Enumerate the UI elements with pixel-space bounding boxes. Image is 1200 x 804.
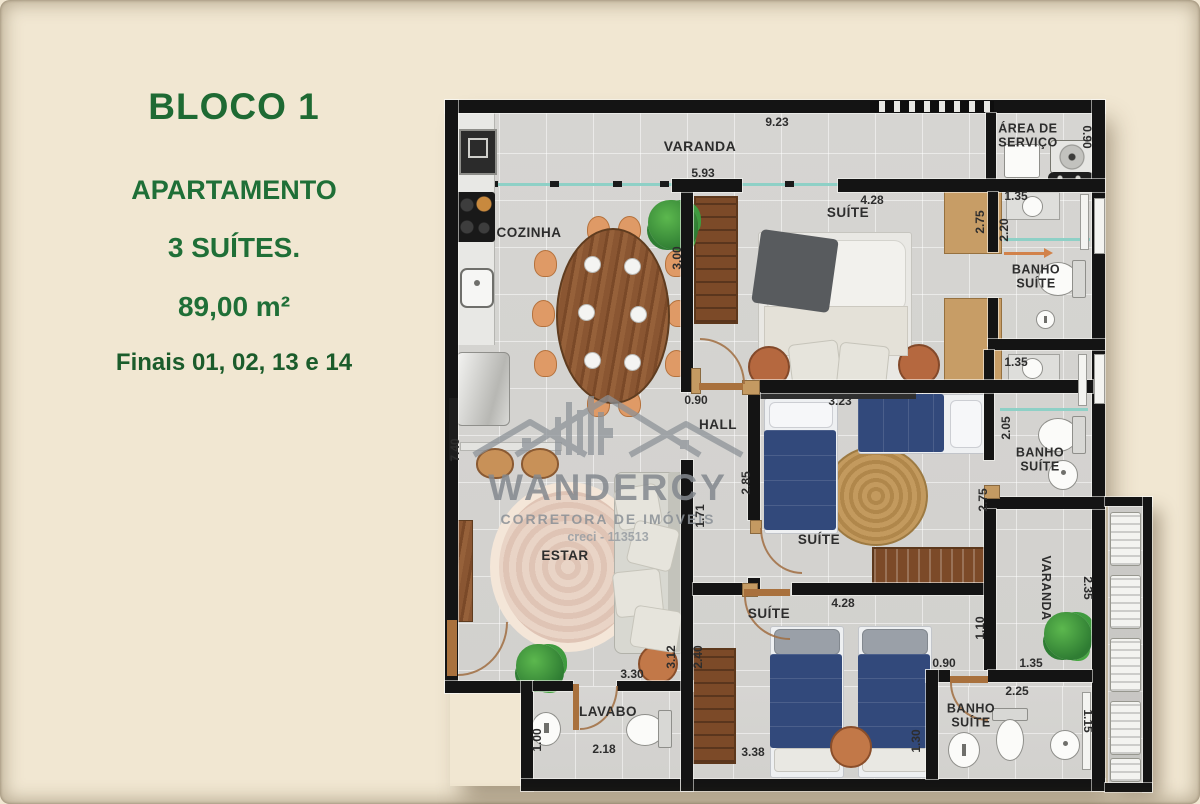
room-label-banho3: BANHO SUÍTE bbox=[947, 702, 995, 731]
wall-hall bbox=[681, 460, 693, 791]
bar-stool bbox=[476, 448, 514, 479]
info-panel: BLOCO 1 APARTAMENTO 3 SUÍTES. 89,00 m² F… bbox=[48, 86, 420, 377]
suite2-duvet bbox=[764, 430, 836, 530]
dim-label: 0.90 bbox=[684, 393, 707, 407]
sink-drain bbox=[474, 280, 480, 286]
banho3-sink-icon bbox=[948, 732, 980, 768]
wall-varanda-partition bbox=[984, 509, 996, 670]
suite2-pillow2 bbox=[950, 400, 982, 448]
place-setting bbox=[584, 256, 601, 273]
wall-banho3-top-b bbox=[988, 670, 1092, 682]
suite3-stool bbox=[830, 726, 872, 768]
dim-label: 2.40 bbox=[691, 645, 705, 668]
room-label-suite1: SUÍTE bbox=[827, 205, 869, 221]
kitchen-sink-icon bbox=[460, 268, 494, 308]
dim-label: 3.30 bbox=[620, 667, 643, 681]
wall-suite2-bottom-a bbox=[693, 583, 742, 595]
wall-under-varanda bbox=[838, 179, 1105, 192]
glass-track-stop bbox=[785, 181, 794, 187]
room-label-lavabo: LAVABO bbox=[579, 704, 637, 720]
dim-label: 1.35 bbox=[1004, 189, 1027, 203]
dim-label: 5.93 bbox=[691, 166, 714, 180]
block-title: BLOCO 1 bbox=[48, 86, 420, 128]
room-label-banho1: BANHO SUÍTE bbox=[1012, 263, 1060, 292]
dim-label: 3.38 bbox=[741, 745, 764, 759]
dim-label: 0.90 bbox=[1080, 125, 1094, 148]
wall-banho2-left bbox=[984, 350, 994, 460]
louver-panel bbox=[1110, 638, 1141, 692]
dim-label: 4.28 bbox=[860, 193, 883, 207]
room-label-cozinha: COZINHA bbox=[497, 225, 562, 241]
fridge-icon bbox=[456, 352, 510, 426]
room-label-suite2: SUÍTE bbox=[798, 532, 840, 548]
glass-track-stop bbox=[660, 181, 669, 187]
dim-label: 1.15 bbox=[1081, 709, 1095, 732]
suite2-closet bbox=[872, 547, 988, 585]
entry-door-leaf bbox=[447, 620, 457, 676]
place-setting bbox=[624, 258, 641, 275]
room-label-servico: ÁREA DE SERVIÇO bbox=[998, 122, 1058, 151]
dim-label: 1.10 bbox=[973, 616, 987, 639]
dining-chair bbox=[532, 300, 555, 327]
dim-label: 2.75 bbox=[973, 210, 987, 233]
drain-mark bbox=[1063, 741, 1068, 746]
dim-label: 1.30 bbox=[909, 729, 923, 752]
suite2-pillow bbox=[769, 402, 833, 428]
wall-lavabo-top-a bbox=[533, 681, 573, 691]
dim-label: 2.18 bbox=[592, 742, 615, 756]
banho2-toilet-tank bbox=[1072, 416, 1086, 454]
drain-mark bbox=[1044, 316, 1047, 323]
suite3-bed-duvet bbox=[770, 654, 842, 748]
dim-label: 3.00 bbox=[670, 246, 684, 269]
glass-track-stop bbox=[550, 181, 559, 187]
dim-label: 3.12 bbox=[664, 645, 678, 668]
lavabo-toilet-tank bbox=[658, 710, 672, 748]
dim-label: 1.00 bbox=[530, 728, 544, 751]
suite3-bed2-pillow bbox=[862, 629, 928, 655]
suite2-jute-rug bbox=[824, 446, 928, 546]
glass-track-stop bbox=[613, 181, 622, 187]
unit-endings: Finais 01, 02, 13 e 14 bbox=[48, 349, 420, 377]
place-setting bbox=[630, 306, 647, 323]
dim-label: 9.23 bbox=[765, 115, 788, 129]
stove-icon bbox=[455, 192, 495, 242]
dim-label: 1.35 bbox=[1004, 355, 1027, 369]
oven-icon bbox=[459, 129, 497, 175]
place-setting bbox=[578, 304, 595, 321]
banho1-shower-glass bbox=[1080, 194, 1089, 250]
dim-label: 1.71 bbox=[693, 504, 707, 527]
dim-label: 3.23 bbox=[828, 394, 851, 408]
wall-suite1-corner bbox=[672, 179, 742, 192]
wall-banho2-bottom bbox=[984, 497, 1105, 509]
dining-chair bbox=[534, 250, 557, 277]
wall-suite2-left-a bbox=[748, 393, 760, 520]
room-label-suite3: SUÍTE bbox=[748, 606, 790, 622]
wall-suite2-bottom-b bbox=[792, 583, 988, 595]
dim-label: 2.25 bbox=[1005, 684, 1028, 698]
suite2-duvet2 bbox=[858, 394, 944, 452]
dim-label: 2.75 bbox=[976, 488, 990, 511]
dining-chair bbox=[534, 350, 557, 377]
wall-left bbox=[445, 100, 458, 693]
banho1-door-arrow bbox=[1004, 252, 1044, 255]
room-label-varanda2: VARANDA bbox=[1039, 555, 1053, 620]
dim-label: 0.90 bbox=[932, 656, 955, 670]
wall-bottom bbox=[681, 779, 1105, 791]
banho1-toilet-tank bbox=[1072, 260, 1086, 298]
place-setting bbox=[624, 354, 641, 371]
dim-label: 2.35 bbox=[1081, 576, 1095, 599]
louver-panel bbox=[1110, 701, 1141, 755]
banho3-toilet-bowl bbox=[996, 719, 1024, 761]
tv-sideboard bbox=[456, 520, 473, 622]
dim-label: 7.40 bbox=[448, 438, 462, 461]
dining-table bbox=[556, 228, 670, 404]
wall-annex-right bbox=[1143, 497, 1152, 792]
wall-suite1-bottom bbox=[748, 380, 1093, 393]
room-label-banho2: BANHO SUÍTE bbox=[1016, 446, 1064, 475]
service-vent-window bbox=[870, 101, 994, 112]
dim-label: 2.05 bbox=[999, 416, 1013, 439]
faucet-mark bbox=[962, 744, 966, 756]
wall-lavabo-bottom bbox=[521, 779, 693, 791]
wall-banho-divider bbox=[988, 339, 1105, 350]
suite-count: 3 SUÍTES. bbox=[48, 232, 420, 264]
room-label-estar: ESTAR bbox=[541, 548, 588, 564]
unit-type: APARTAMENTO bbox=[48, 175, 420, 206]
dim-label: 2.20 bbox=[997, 218, 1011, 241]
wall-suite1-left bbox=[681, 179, 693, 392]
suite3-door-leaf bbox=[744, 589, 790, 596]
suite1-door-leaf bbox=[699, 383, 743, 390]
suite1-throw-blanket bbox=[751, 229, 839, 313]
banho3-shower-drain bbox=[1050, 730, 1080, 760]
wall-banho3-left bbox=[926, 670, 938, 779]
banho1-drain bbox=[1036, 310, 1055, 329]
banho2-glass-line bbox=[1000, 408, 1088, 411]
oven-door bbox=[468, 138, 488, 158]
banho3-door-leaf bbox=[950, 676, 988, 683]
wall-annex-bottom bbox=[1105, 783, 1152, 792]
louver-panel bbox=[1110, 575, 1141, 629]
bar-stool bbox=[521, 448, 559, 479]
louver-panel bbox=[1110, 758, 1141, 782]
banho1-glass-line bbox=[1004, 238, 1090, 241]
room-label-varanda: VARANDA bbox=[664, 138, 736, 154]
louver-panel bbox=[1110, 512, 1141, 566]
banho2-window bbox=[1094, 354, 1105, 404]
place-setting bbox=[584, 352, 601, 369]
wall-estar-bottom bbox=[445, 681, 533, 693]
dim-label: 4.28 bbox=[831, 596, 854, 610]
banho2-shower-glass bbox=[1078, 354, 1087, 406]
wall-servico-left bbox=[986, 113, 996, 185]
wall-top bbox=[445, 100, 1105, 113]
dim-label: 1.35 bbox=[1019, 656, 1042, 670]
banho1-window bbox=[1094, 198, 1105, 254]
suite1-wardrobe bbox=[694, 196, 738, 324]
banho1-door-arrow-head bbox=[1044, 248, 1053, 258]
faucet-mark bbox=[544, 723, 549, 733]
room-label-hall: HALL bbox=[699, 417, 737, 433]
unit-area: 89,00 m² bbox=[48, 291, 420, 323]
dim-label: 2.85 bbox=[739, 471, 753, 494]
floor-plan-flyer: BLOCO 1 APARTAMENTO 3 SUÍTES. 89,00 m² F… bbox=[0, 0, 1200, 804]
